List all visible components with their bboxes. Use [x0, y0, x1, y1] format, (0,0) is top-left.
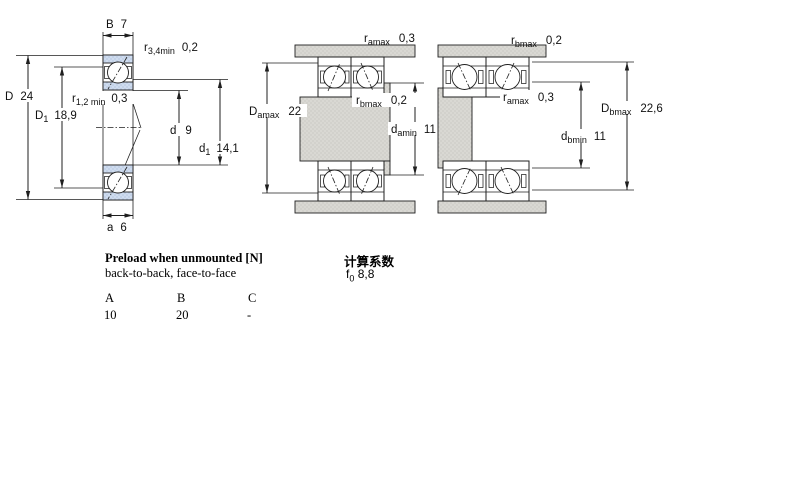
f0-factor: f0 8,8	[346, 267, 374, 283]
dim-label-a: a6	[107, 222, 127, 234]
preload-col-header-C: C	[248, 291, 256, 306]
ball	[108, 172, 129, 193]
housing-bottom	[438, 201, 546, 213]
ball	[357, 170, 379, 192]
f0-value: 8,8	[358, 267, 375, 281]
ball	[357, 66, 379, 88]
dim-label-r34min: r3,4min0,2	[144, 42, 198, 56]
dim-label-D1: D118,9	[35, 110, 77, 124]
shaft-shoulder-bottom	[384, 161, 390, 175]
dim-label-rbmax: rbmax0,2	[511, 35, 562, 49]
technical-drawing: B7 r3,4min0,2 D24 r1,2 min0,3 D118,9 d9 …	[0, 0, 800, 245]
ball	[324, 170, 346, 192]
preload-col-header-B: B	[177, 291, 185, 306]
bearing-section-bottom	[103, 165, 133, 200]
ball	[324, 66, 346, 88]
housing-top	[295, 45, 415, 57]
ball	[108, 62, 129, 83]
bearing-datasheet-drawing: B7 r3,4min0,2 D24 r1,2 min0,3 D118,9 d9 …	[0, 0, 800, 500]
preload-value-C: -	[247, 308, 251, 323]
dim-label-ramax: ramax0,3	[364, 33, 415, 47]
dim-label-d1: d114,1	[199, 143, 239, 157]
preload-subtitle: back-to-back, face-to-face	[105, 266, 236, 281]
preload-col-header-A: A	[105, 291, 114, 306]
preload-value-A: 10	[104, 308, 117, 323]
preload-title: Preload when unmounted [N]	[105, 251, 263, 266]
left-bearing-cross-section: B7 r3,4min0,2 D24 r1,2 min0,3 D118,9 d9 …	[2, 19, 248, 234]
f0-subscript: 0	[349, 273, 354, 283]
bearing-section-top	[103, 55, 133, 90]
shaft-block	[438, 88, 472, 168]
preload-value-B: 20	[176, 308, 189, 323]
bearing-pair-bottom	[443, 161, 529, 201]
dim-label-D: D24	[5, 91, 34, 103]
middle-paired-bearing-diagram: ramax0,3 Damax22 rbmax0,2 damin11	[245, 33, 438, 213]
dim-label-B: B7	[106, 19, 127, 31]
bearing-pair-bottom	[318, 161, 384, 201]
right-paired-bearing-diagram: rbmax0,2 ramax0,3 Dbmax22,6 dbmin11	[438, 35, 672, 213]
housing-bottom	[295, 201, 415, 213]
bearing-pair-top	[318, 57, 384, 97]
